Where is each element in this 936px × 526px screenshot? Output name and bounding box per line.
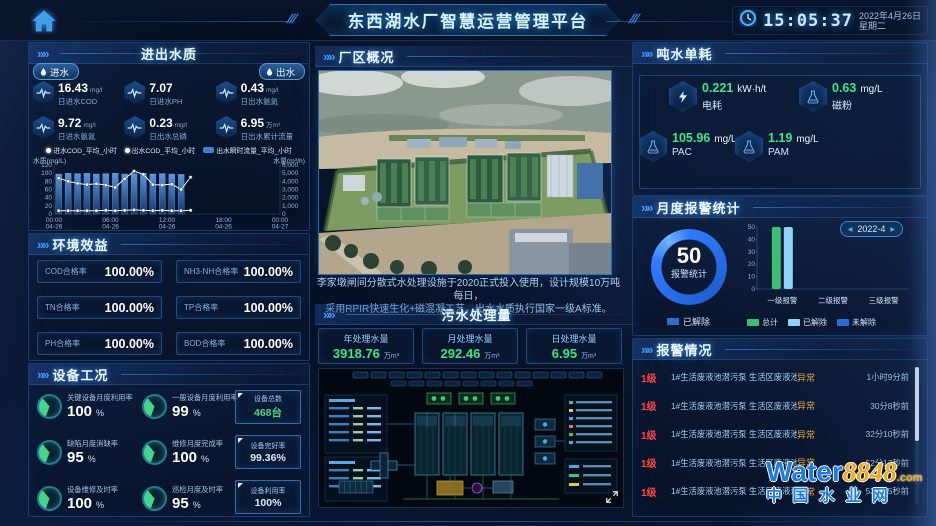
legend-swatch — [837, 319, 849, 326]
consumption-pac: 105.96mg/LPAC — [639, 131, 736, 162]
home-button[interactable] — [30, 8, 58, 32]
panel-alarm-stats-header: »» 月度报警统计 — [633, 197, 927, 218]
panel-title: 污水处理量 — [441, 305, 511, 324]
current-time: 15:05:37 — [763, 11, 853, 31]
header: /// 东西湖水厂智慧运营管理平台 /// 15:05:37 2022年4月26… — [0, 0, 936, 41]
svg-text:50: 50 — [748, 224, 756, 231]
svg-text:100: 100 — [41, 170, 52, 177]
env-item-tn: TN合格率100.00% — [37, 296, 162, 319]
deco-slashes-left: /// — [285, 11, 300, 26]
pulse-icon — [124, 116, 145, 139]
svg-text:6,000: 6,000 — [282, 162, 299, 169]
svg-text:04-26: 04-26 — [46, 224, 63, 231]
stat-utilization: 设备利用率100% — [235, 480, 301, 514]
gauge-defect-fix: 缺陷月度消缺率95% — [37, 434, 136, 470]
svg-text:120: 120 — [41, 162, 52, 169]
chevrons-icon: »» — [323, 50, 333, 63]
gauge-patrol-ontime: 巡检月度及时率95% — [142, 480, 241, 516]
svg-text:40: 40 — [748, 236, 756, 243]
bottom-frame-line — [20, 521, 916, 522]
alarm-row[interactable]: 1级1#生活废液池潜污泵 生活区废液池异常32分10秒前 — [641, 420, 909, 449]
svg-text:04-27: 04-27 — [272, 224, 289, 231]
panel-water-quality: »» 进出水质 进水 出水 16.43mg/l日进水COD 7.07日进水PH — [28, 42, 310, 231]
svg-text:4,000: 4,000 — [282, 178, 299, 185]
clock-icon — [739, 9, 757, 32]
legend-swatch — [667, 318, 679, 325]
panel-title: 报警情况 — [656, 340, 712, 359]
stat-total-devices: 设备总数468台 — [235, 390, 301, 424]
bar-marker-icon — [203, 147, 214, 153]
deco-slashes-right: /// — [627, 11, 642, 26]
water-quality-chart: 02040608010012001,0002,0003,0004,0005,00… — [29, 162, 309, 230]
svg-text:20: 20 — [45, 203, 53, 210]
stat-daily-volume: 日处理水量6.95万m³ — [526, 328, 622, 364]
alarm-bar-legend: 总计 已解除 未解除 — [747, 317, 876, 328]
svg-text:40: 40 — [45, 195, 53, 202]
chevrons-icon: »» — [37, 238, 47, 251]
water-quality-chart-legend: 进水COD_平均_小时 出水COD_平均_小时 出水瞬时流量_平均_小时 — [29, 145, 309, 155]
pulse-icon — [216, 81, 237, 104]
alarm-row[interactable]: 1级1#生活废液池潜污泵 生活区废液池异常53分25秒前 — [641, 477, 909, 506]
gauge-icon — [142, 486, 167, 511]
svg-text:二级报警: 二级报警 — [818, 295, 848, 305]
legend-inlet-cod[interactable]: 进水COD_平均_小时 — [46, 145, 116, 155]
legend-outlet-cod[interactable]: 出水COD_平均_小时 — [125, 145, 195, 155]
svg-text:04-26: 04-26 — [102, 224, 119, 231]
svg-text:3,000: 3,000 — [282, 187, 299, 194]
legend-swatch — [747, 319, 759, 326]
env-item-bod: BOD合格率100.00% — [176, 332, 301, 355]
panel-sewage-header: »» 污水处理量 — [315, 304, 638, 325]
stat-annual-volume: 年处理水量3918.76万m³ — [318, 328, 414, 364]
gauge-repair-ontime: 设备维修及时率100% — [37, 480, 136, 516]
svg-text:1,000: 1,000 — [282, 203, 299, 210]
expand-icon[interactable] — [605, 490, 619, 504]
svg-text:80: 80 — [45, 178, 53, 185]
scrollbar-track[interactable] — [915, 367, 919, 505]
panel-alarms-header: »» 报警情况 — [633, 339, 927, 360]
svg-text:三级报警: 三级报警 — [869, 295, 899, 305]
alarm-row[interactable]: 1级1#生活废液池潜污泵 生活区废液池异常1小时9分前 — [641, 363, 909, 392]
chevrons-icon: »» — [641, 343, 651, 356]
metric-inlet-cod: 16.43mg/l日进水COD — [33, 81, 124, 111]
panel-title: 月度报警统计 — [656, 198, 740, 217]
legend-total[interactable]: 总计 — [747, 317, 778, 328]
inlet-water-button[interactable]: 进水 — [33, 63, 79, 80]
flask-icon — [799, 81, 827, 112]
panel-alarms: »» 报警情况 1级1#生活废液池潜污泵 生活区废液池异常1小时9分前 1级1#… — [632, 338, 928, 517]
gauge-icon — [37, 394, 62, 419]
alarm-bar-chart: 01020304050一级报警二级报警三级报警 — [741, 223, 913, 311]
svg-text:20: 20 — [748, 261, 756, 268]
flask-icon — [735, 131, 763, 162]
env-item-cod: COD合格率100.00% — [37, 260, 162, 283]
current-date: 2022年4月26日 — [859, 11, 921, 21]
svg-text:10: 10 — [748, 274, 756, 281]
svg-text:0: 0 — [751, 286, 755, 293]
pulse-icon — [124, 81, 145, 104]
clock-widget: 15:05:37 2022年4月26日 星期二 — [732, 6, 928, 35]
env-item-tp: TP合格率100.00% — [176, 296, 301, 319]
panel-consumption-header: »» 吨水单耗 — [633, 43, 927, 64]
dashboard: /// 东西湖水厂智慧运营管理平台 /// 15:05:37 2022年4月26… — [0, 0, 936, 526]
pulse-icon — [33, 116, 54, 139]
panel-alarm-stats: »» 月度报警统计 ◀ 2022-4 ▶ 50 报警统计 已解除 0102030… — [632, 196, 928, 336]
scrollbar-thumb[interactable] — [915, 367, 919, 441]
consumption-magnetic: 0.63mg/L磁粉 — [799, 81, 883, 112]
panel-equipment: »» 设备工况 关键设备月度利用率100% 一般设备月度利用率99% 缺陷月度消… — [28, 363, 310, 517]
svg-text:5,000: 5,000 — [282, 170, 299, 177]
chevrons-icon: »» — [323, 308, 333, 321]
svg-text:04-26: 04-26 — [159, 224, 176, 231]
panel-title: 厂区概况 — [338, 47, 394, 66]
metric-outlet-tp: 0.23mg/l日出水总磷 — [124, 116, 215, 146]
svg-text:一级报警: 一级报警 — [767, 295, 797, 305]
plant-aerial-photo — [318, 70, 612, 275]
sewage-stats: 年处理水量3918.76万m³ 月处理水量292.46万m³ 日处理水量6.95… — [318, 328, 622, 364]
metric-inlet-nh3: 9.72mg/l日进水氨氮 — [33, 116, 124, 146]
metric-inlet-ph: 7.07日进水PH — [124, 81, 215, 111]
page-title: 东西湖水厂智慧运营管理平台 — [348, 8, 589, 32]
header-deco-line-left — [72, 21, 292, 22]
svg-text:04-26: 04-26 — [215, 224, 232, 231]
consumption-power: 0.221kW·h/t电耗 — [669, 81, 766, 112]
current-weekday: 星期二 — [859, 21, 921, 31]
stat-intact-rate: 设备完好率99.36% — [235, 435, 301, 469]
consumption-pam: 1.19mg/LPAM — [735, 131, 819, 162]
svg-text:60: 60 — [45, 187, 53, 194]
chevrons-icon: »» — [641, 47, 651, 60]
svg-text:2,000: 2,000 — [282, 195, 299, 202]
gauge-repair-complete: 维修月度完成率100% — [142, 434, 241, 470]
panel-consumption: »» 吨水单耗 0.221kW·h/t电耗 0.63mg/L磁粉 105.96m… — [632, 42, 928, 196]
panel-water-quality-header: »» 进出水质 — [29, 43, 309, 64]
legend-outlet-flow[interactable]: 出水瞬时流量_平均_小时 — [203, 145, 292, 155]
chevrons-icon: »» — [641, 201, 651, 214]
svg-text:30: 30 — [748, 249, 756, 256]
metric-outlet-nh3: 0.43mg/l日出水氨氮 — [216, 81, 307, 111]
panel-equipment-header: »» 设备工况 — [29, 364, 309, 385]
gauge-icon — [142, 440, 167, 465]
alarm-row[interactable]: 1级1#生活废液池潜污泵 生活区废液池异常30分8秒前 — [641, 392, 909, 421]
equipment-stats: 设备总数468台 设备完好率99.36% 设备利用率100% — [235, 390, 301, 514]
gauge-icon — [37, 486, 62, 511]
line-marker-icon — [125, 148, 130, 153]
panel-title: 设备工况 — [52, 365, 108, 384]
panel-title: 环境效益 — [52, 235, 108, 254]
env-items: COD合格率100.00% NH3-NH合格率100.00% TN合格率100.… — [37, 260, 301, 355]
panel-env-benefit: »» 环境效益 COD合格率100.00% NH3-NH合格率100.00% T… — [28, 233, 310, 361]
water-quality-metrics: 16.43mg/l日进水COD 7.07日进水PH 0.43mg/l日出水氨氮 … — [33, 81, 307, 146]
app-title-frame: 东西湖水厂智慧运营管理平台 — [316, 4, 620, 36]
equipment-gauges: 关键设备月度利用率100% 一般设备月度利用率99% 缺陷月度消缺率95% 维修… — [37, 388, 241, 516]
lightning-icon — [669, 81, 697, 112]
panel-title: 吨水单耗 — [656, 44, 712, 63]
process-flow-diagram — [318, 368, 624, 508]
pulse-icon — [33, 81, 54, 104]
env-item-ph: PH合格率100.00% — [37, 332, 162, 355]
env-item-nh3: NH3-NH合格率100.00% — [176, 260, 301, 283]
gauge-icon — [142, 394, 167, 419]
donut-legend-resolved[interactable]: 已解除 — [667, 315, 710, 328]
pulse-icon — [216, 116, 237, 139]
chevrons-icon: »» — [37, 47, 47, 60]
stat-monthly-volume: 月处理水量292.46万m³ — [422, 328, 518, 364]
legend-resolved[interactable]: 已解除 — [788, 317, 827, 328]
line-marker-icon — [46, 148, 51, 153]
gauge-general-util: 一般设备月度利用率99% — [142, 388, 241, 424]
alarm-table: 1级1#生活废液池潜污泵 生活区废液池异常1小时9分前 1级1#生活废液池潜污泵… — [641, 363, 909, 506]
alarm-row[interactable]: 1级1#生活废液池潜污泵 生活区废液池异常52分17秒前 — [641, 449, 909, 478]
panel-env-header: »» 环境效益 — [29, 234, 309, 255]
panel-plant-header: »» 厂区概况 — [315, 46, 638, 67]
flask-icon — [639, 131, 667, 162]
alarm-donut-chart — [651, 229, 727, 305]
outlet-water-button[interactable]: 出水 — [259, 63, 305, 80]
chevrons-icon: »» — [37, 368, 47, 381]
gauge-key-util: 关键设备月度利用率100% — [37, 388, 136, 424]
metric-outlet-flow: 6.95万m³日出水累计流量 — [216, 116, 307, 146]
panel-title: 进出水质 — [141, 44, 197, 63]
water-drop-icon — [266, 67, 273, 76]
legend-unresolved[interactable]: 未解除 — [837, 317, 876, 328]
gauge-icon — [37, 440, 62, 465]
water-drop-icon — [40, 67, 47, 76]
legend-swatch — [788, 319, 800, 326]
